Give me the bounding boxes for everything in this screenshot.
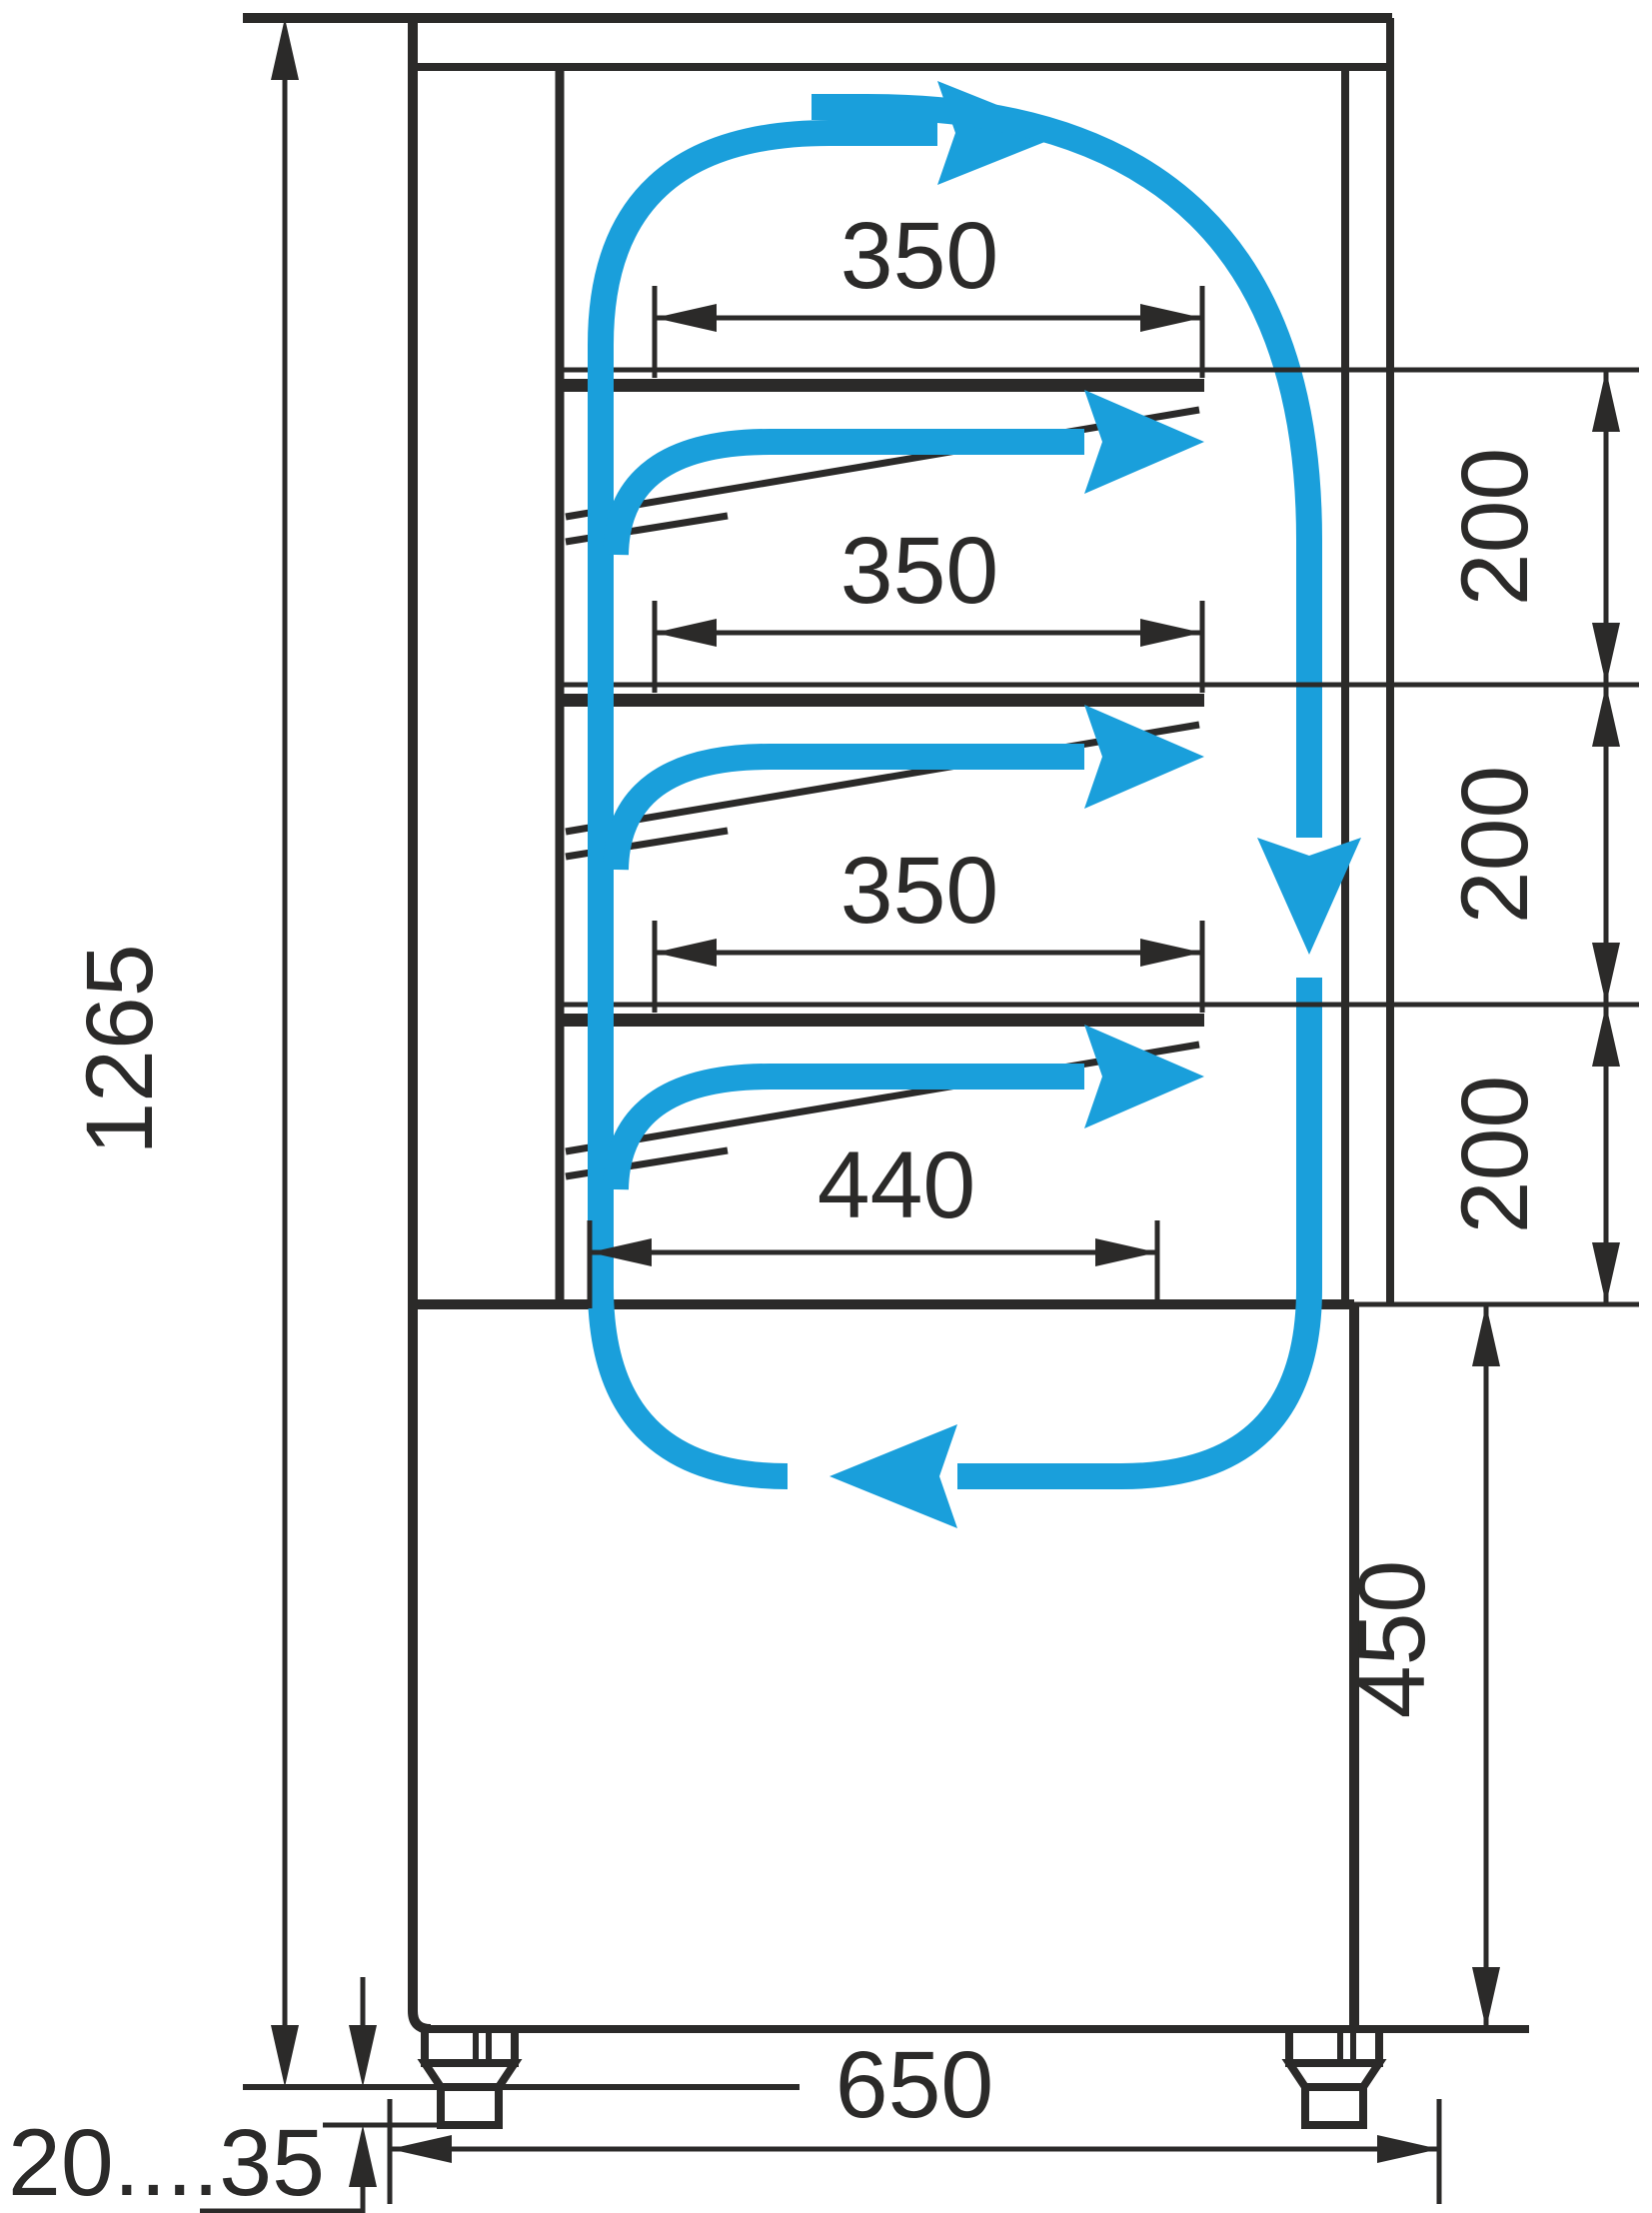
dim-350-1-arrow-right-icon [1140,304,1202,332]
dim-label-base-height: 450 [1339,1560,1445,1719]
dim-350-1-arrow-left-icon [655,304,717,332]
dim-350-2-arrow-right-icon [1140,619,1202,647]
dim-shelf-gaps: 200 200 200 [1204,370,1639,1304]
dim-label-gap1: 200 [1442,448,1548,607]
foot-left-flange [425,2029,515,2063]
dim-350-2-arrow-left-icon [655,619,717,647]
dim-1265-arrow-up-icon [271,18,299,80]
dim-label-depth-overall: 650 [835,2032,994,2138]
dim-feet-adjust: 20....35 [8,1977,800,2213]
dim-depth-overall: 650 [390,2032,1439,2204]
dim-feet-arrow-down-icon [349,2025,377,2087]
dim-650-arrow-right-icon [1377,2135,1439,2163]
dim-shelf2-depth: 350 [655,518,1202,693]
shelf-3-board [560,1014,1204,1027]
front-glass [1345,18,1390,1304]
dim-200-3-arrow-up-icon [1592,1005,1620,1067]
foot-left-pad [441,2087,499,2125]
airflow-shelf3-arrow-icon [1084,1025,1204,1128]
dim-200-1-arrow-up-icon [1592,370,1620,432]
dim-shelf3-depth: 350 [655,838,1202,1013]
dim-shelf1-depth: 350 [655,203,1202,378]
dim-200-1-arrow-down-icon [1592,623,1620,685]
foot-right [1289,2029,1379,2125]
airflow-return-arrow-icon [829,1424,957,1528]
dim-label-gap3: 200 [1442,1076,1548,1234]
dim-feet-arrow-up-icon [349,2125,377,2187]
airflow-shelf2-arrow-icon [1084,705,1204,809]
dim-200-2-arrow-down-icon [1592,943,1620,1005]
foot-left [425,2029,515,2125]
dim-label-shelf1-depth: 350 [840,203,999,309]
dim-1265-arrow-down-icon [271,2025,299,2087]
foot-right-pad [1305,2087,1363,2125]
dim-label-feet-adjust: 20....35 [8,2110,325,2213]
dim-450-arrow-up-icon [1472,1304,1500,1366]
shelf-2-board [560,694,1204,707]
dim-label-gap2: 200 [1442,766,1548,925]
dim-base-height: 450 [1339,1304,1500,2029]
dim-label-shelf3-depth: 350 [840,838,999,944]
back-wall [413,18,431,2029]
dim-350-3-arrow-left-icon [655,939,717,967]
dim-350-3-arrow-right-icon [1140,939,1202,967]
dim-450-arrow-down-icon [1472,1967,1500,2029]
dim-label-height-overall: 1265 [67,944,173,1154]
dim-label-shelf2-depth: 350 [840,518,999,624]
dim-440-arrow-right-icon [1095,1238,1157,1266]
dim-650-arrow-left-icon [390,2135,452,2163]
dim-200-3-arrow-down-icon [1592,1242,1620,1304]
dimension-annotations: 1265 350 350 350 [8,18,1639,2213]
foot-right-flange [1289,2029,1379,2063]
dim-label-bottom-shelf-depth: 440 [818,1132,976,1238]
shelf-1-board [560,379,1204,392]
technical-drawing: 1265 350 350 350 [0,0,1652,2213]
airflow-shelf1-arrow-icon [1084,390,1204,494]
dim-height-overall: 1265 [67,18,299,2087]
display-case-diagram: 1265 350 350 350 [0,0,1652,2213]
dim-200-2-arrow-up-icon [1592,685,1620,747]
